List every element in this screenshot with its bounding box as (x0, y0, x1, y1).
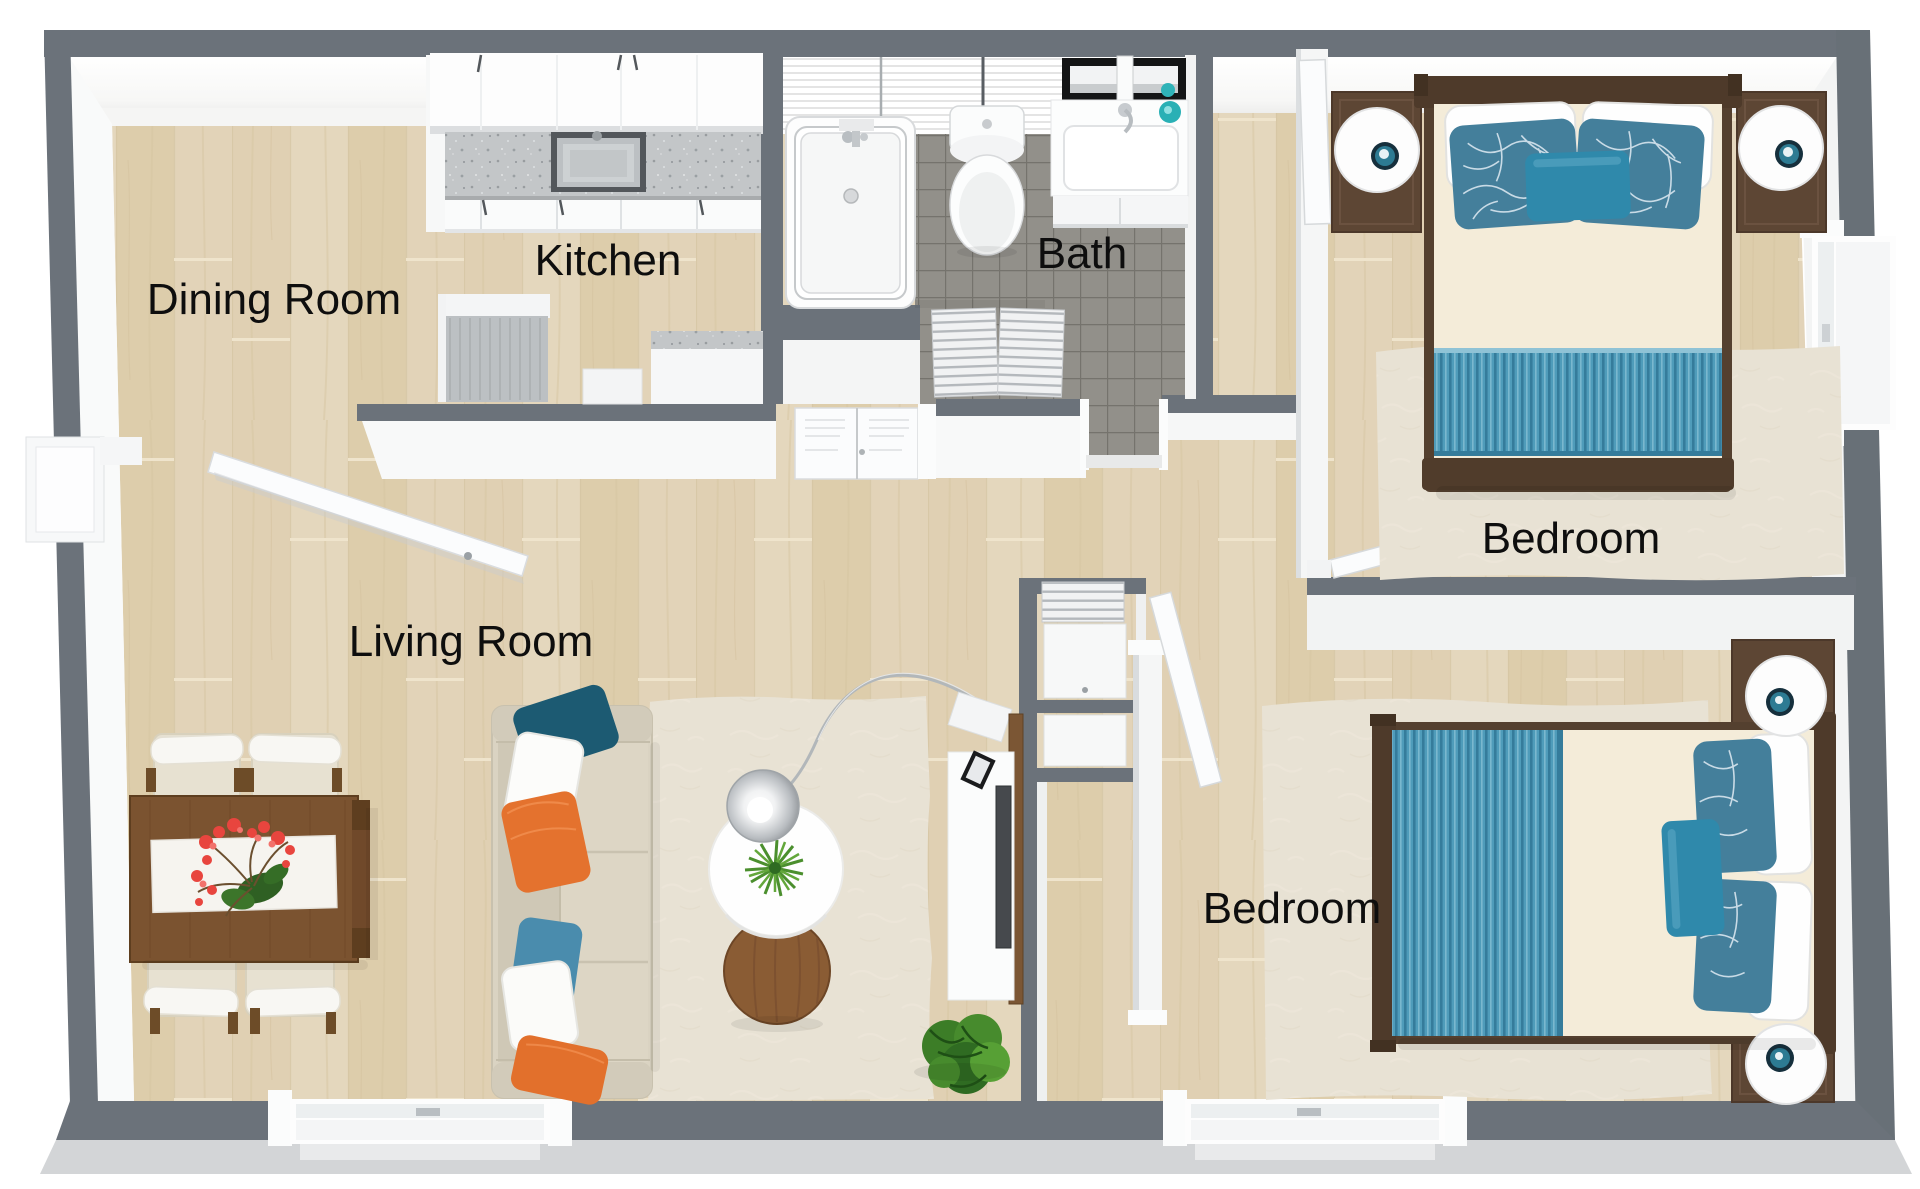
svg-text:Living Room: Living Room (349, 617, 594, 666)
svg-text:Bedroom: Bedroom (1203, 884, 1382, 933)
svg-text:Bath: Bath (1037, 229, 1128, 278)
svg-text:Bedroom: Bedroom (1482, 514, 1661, 563)
svg-text:Dining Room: Dining Room (147, 275, 401, 324)
svg-text:Kitchen: Kitchen (535, 236, 682, 285)
